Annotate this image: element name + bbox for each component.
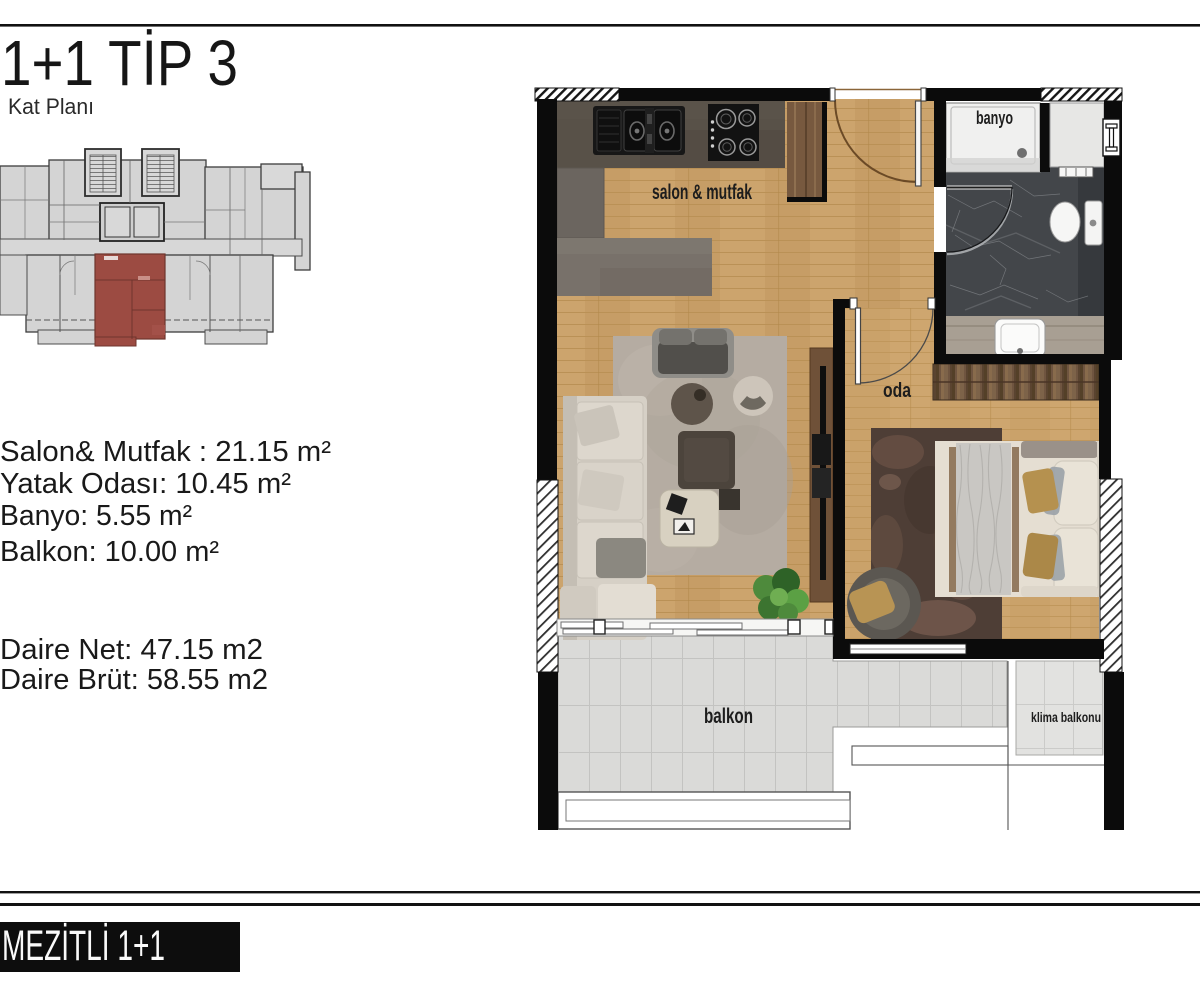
svg-text:Kat Planı: Kat Planı: [8, 94, 94, 119]
svg-text:Salon& Mutfak : 21.15 m²: Salon& Mutfak : 21.15 m²: [0, 436, 331, 468]
svg-text:Banyo: 5.55 m²: Banyo: 5.55 m²: [0, 500, 192, 532]
svg-text:Daire Brüt: 58.55 m2: Daire Brüt: 58.55 m2: [0, 664, 268, 696]
svg-text:balkon: balkon: [704, 705, 753, 728]
svg-text:1+1 TİP 3: 1+1 TİP 3: [1, 27, 238, 99]
svg-text:MEZİTLİ 1+1: MEZİTLİ 1+1: [2, 922, 165, 970]
svg-text:klima balkonu: klima balkonu: [1031, 709, 1101, 725]
svg-text:Daire Net: 47.15 m2: Daire Net: 47.15 m2: [0, 634, 263, 666]
svg-text:Yatak Odası: 10.45 m²: Yatak Odası: 10.45 m²: [0, 468, 291, 500]
svg-text:oda: oda: [883, 380, 912, 402]
svg-text:banyo: banyo: [976, 108, 1013, 128]
svg-text:Balkon: 10.00 m²: Balkon: 10.00 m²: [0, 536, 219, 568]
svg-text:salon & mutfak: salon & mutfak: [652, 181, 752, 204]
